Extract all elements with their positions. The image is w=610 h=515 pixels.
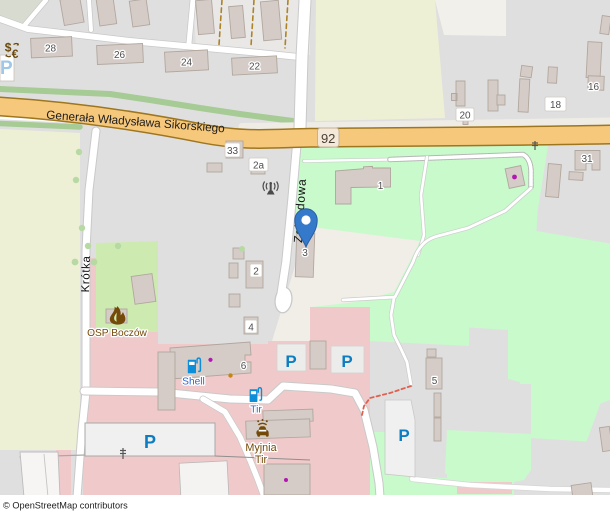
svg-text:1: 1 — [378, 181, 384, 192]
svg-text:Shell: Shell — [182, 377, 205, 388]
svg-text:4: 4 — [248, 323, 254, 334]
svg-text:16: 16 — [588, 82, 600, 93]
svg-text:P: P — [285, 352, 296, 371]
svg-text:22: 22 — [249, 62, 261, 73]
svg-text:€: € — [12, 47, 19, 61]
svg-text:6: 6 — [241, 361, 247, 372]
svg-text:33: 33 — [227, 146, 239, 157]
svg-text:Myjnia: Myjnia — [245, 442, 276, 454]
svg-text:26: 26 — [114, 50, 126, 61]
svg-text:92: 92 — [321, 131, 335, 146]
svg-text:28: 28 — [45, 44, 57, 55]
svg-text:3: 3 — [302, 248, 308, 259]
svg-text:18: 18 — [550, 100, 562, 111]
svg-text:Tir: Tir — [250, 405, 262, 416]
svg-text:31: 31 — [581, 154, 593, 165]
svg-text:P: P — [144, 432, 156, 452]
svg-text:$: $ — [5, 41, 12, 55]
svg-text:2: 2 — [253, 267, 259, 278]
svg-text:P: P — [398, 426, 409, 445]
svg-text:2a: 2a — [253, 161, 265, 172]
svg-text:Tir: Tir — [255, 454, 268, 466]
svg-text:24: 24 — [181, 58, 193, 69]
svg-text:20: 20 — [459, 111, 471, 122]
svg-text:© OpenStreetMap contributors: © OpenStreetMap contributors — [3, 501, 128, 511]
svg-text:P: P — [341, 352, 352, 371]
svg-text:5: 5 — [432, 376, 438, 387]
svg-text:P: P — [0, 58, 13, 79]
svg-text:OSP Boczów: OSP Boczów — [87, 328, 147, 339]
